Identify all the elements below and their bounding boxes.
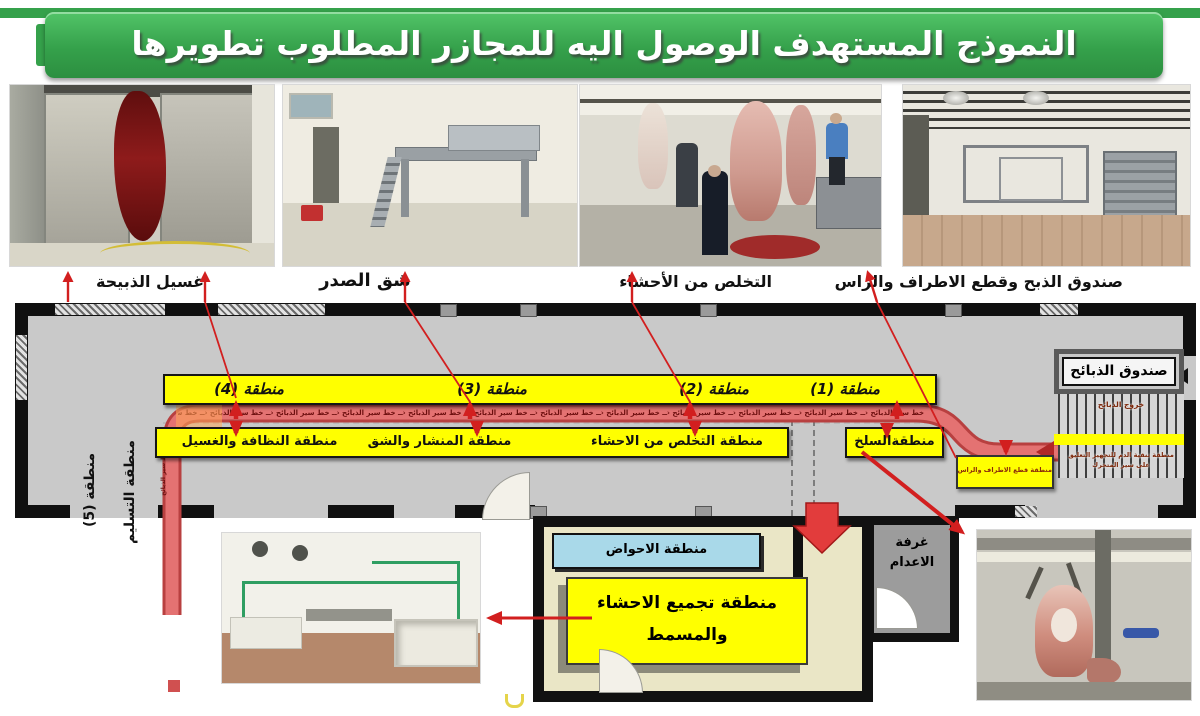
lamp (943, 91, 969, 105)
ceiling-fan (292, 545, 308, 561)
work-table (306, 609, 392, 621)
hoist-frame (448, 125, 540, 151)
skinning-area-box: منطقةالسلخ (845, 427, 944, 458)
zone-4-label: منطقة (4) (189, 380, 309, 398)
zones-band: منطقة (1) منطقة (2) منطقة (3) منطقة (4) (163, 374, 937, 405)
title-banner: النموذج المستهدف الوصول اليه للمجازر الم… (45, 12, 1163, 78)
delivery-area-label: منطقة التسليم (122, 422, 142, 562)
photo-evisceration (580, 85, 881, 266)
blood-area-label: منطقة تنقية الدم للتجهيز التعليق على سير… (1061, 450, 1181, 471)
column (520, 304, 537, 317)
wall-bottom (1158, 505, 1196, 518)
slide: النموذج المستهدف الوصول اليه للمجازر الم… (0, 0, 1200, 716)
conveyor-label-vertical: خط سير الذبائح (160, 450, 167, 560)
caption-wash: غسيل الذبيحة (85, 272, 215, 291)
basin (230, 617, 302, 649)
areas-band: منطقة التخلص من الاحشاء منطقة المنشار وا… (155, 427, 789, 458)
page-title: النموذج المستهدف الوصول اليه للمجازر الم… (45, 12, 1163, 76)
ceiling-rails (903, 85, 1190, 129)
exit-label: خروج الذبائح (1071, 400, 1171, 409)
worker (676, 143, 698, 207)
slaughter-box-label: صندوق الذبائح (1062, 357, 1176, 386)
zone-3-label: منطقة (3) (432, 380, 552, 398)
window-hatch (55, 304, 165, 315)
window-hatch (16, 335, 27, 400)
steel-panel (10, 85, 44, 245)
head (830, 113, 842, 124)
viscera-collection-room: منطقة الاحواض منطقة تجميع الاحشاء والمسم… (533, 516, 873, 702)
hanging-carcass (638, 103, 668, 189)
conveyor-label-strip: خط سير الذبائح ‹ــ خط سير الذبائح ‹ــ خط… (178, 406, 924, 420)
conveyor-end-marker (168, 680, 180, 692)
worker-blue-shirt (826, 123, 848, 159)
green-pipe (242, 581, 460, 584)
column (700, 304, 717, 317)
stairs-platform (1103, 151, 1177, 225)
lamp (1023, 91, 1049, 105)
platform-leg (401, 159, 409, 217)
area-saw-label: منطقة المنشار والشق (352, 434, 527, 449)
limbs-cutting-label: منطقة قطع الاطراف والراس (958, 466, 1052, 474)
wall-bottom (15, 505, 70, 518)
exit-yellow-strip (1054, 434, 1184, 445)
platform (816, 177, 881, 229)
wall-right (1183, 400, 1196, 518)
area-cleaning-label: منطقة النظافة والغسيل (177, 434, 342, 449)
floor (977, 682, 1191, 700)
blood-pool (730, 235, 820, 259)
area-skinning-label: منطقةالسلخ (847, 434, 942, 449)
dark-corner (903, 115, 929, 217)
doorway (313, 127, 339, 205)
exit-hatch-area: خروج الذبائح منطقة تنقية الدم للتجهيز ال… (1058, 394, 1184, 478)
wall-top (15, 303, 1196, 316)
overhead-rail (580, 99, 881, 103)
overhead-rail (977, 538, 1191, 550)
basins-area-label: منطقة الاحواض (554, 535, 759, 565)
wall (252, 85, 274, 266)
head (708, 165, 721, 177)
hide-flap (1087, 658, 1121, 684)
floor-marking (100, 241, 250, 266)
condemnation-room: غرفة الاعدام (865, 516, 959, 642)
worker-legs (829, 157, 845, 185)
column (945, 304, 962, 317)
zone-1-label: منطقة (1) (785, 380, 905, 398)
hanging-carcass (730, 101, 782, 221)
platform-leg (521, 159, 529, 217)
metal-frame (999, 157, 1063, 201)
blue-tool (1123, 628, 1159, 638)
slaughter-box-frame: صندوق الذبائح (1054, 349, 1184, 394)
door-arc (876, 587, 918, 629)
basin (394, 619, 478, 667)
window (289, 93, 333, 119)
area-viscera-label: منطقة التخلص من الاحشاء (577, 434, 777, 449)
hanging-carcass (786, 105, 816, 205)
child-with-backpack (702, 171, 728, 255)
limbs-cutting-box: منطقة قطع الاطراف والراس (956, 455, 1054, 489)
column (440, 304, 457, 317)
window-hatch (218, 304, 325, 315)
basins-area-box: منطقة الاحواض (552, 533, 761, 569)
photo-carcass-washing (10, 85, 274, 266)
yellow-glyph (505, 694, 524, 708)
light-strip (977, 552, 1191, 562)
photo-chest-splitting-hall (283, 85, 577, 266)
caption-viscera: التخلص من الأحشاء (642, 272, 772, 291)
photo-skinning (977, 530, 1191, 700)
viscera-collection-label: منطقة تجميع الاحشاء والمسمط (568, 579, 806, 660)
condemnation-label: غرفة الاعدام (874, 525, 950, 572)
red-stool (301, 205, 323, 221)
carcass-fat (1051, 608, 1077, 642)
ceiling-fan (252, 541, 268, 557)
photo-basins-room (222, 533, 480, 683)
steel-panel (160, 93, 256, 255)
caption-chest: شق الصدر (315, 270, 415, 291)
green-pipe (372, 561, 460, 564)
zone-2-label: منطقة (2) (654, 380, 774, 398)
floor (283, 203, 577, 266)
wall-right (1183, 303, 1196, 356)
brick-floor (903, 215, 1190, 266)
photo-slaughter-box-hall (903, 85, 1190, 266)
zone-5-label: منطقة (5) (82, 430, 102, 550)
window-hatch (1040, 304, 1078, 315)
caption-slaughter-box: صندوق الذبح وقطع الاطراف والراس (888, 272, 1123, 291)
